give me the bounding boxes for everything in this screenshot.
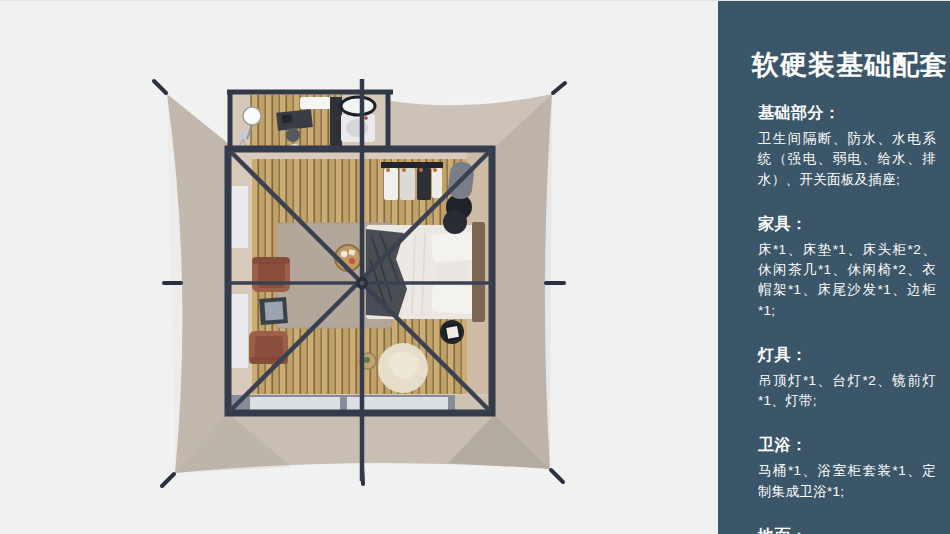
section-bathroom: 卫浴： 马桶*1、浴室柜套装*1、定制集成卫浴*1; xyxy=(758,435,936,502)
small-pillow xyxy=(437,263,467,283)
tent-floorplan-render xyxy=(0,1,718,534)
bathroom xyxy=(227,90,393,151)
info-panel: 软硬装基础配套 基础部分： 卫生间隔断、防水、水电系统（强电、弱电、给水、排水）… xyxy=(718,1,950,534)
section-body: 吊顶灯*1、台灯*2、镜前灯*1、灯带; xyxy=(758,371,936,412)
section-heading: 卫浴： xyxy=(758,435,936,456)
armchair-1 xyxy=(252,257,290,292)
tent-floorplan-svg xyxy=(0,1,718,534)
clothes-rack xyxy=(381,162,443,200)
section-flooring: 地面： 强化木地板、卫生间防滑防潮石塑板; xyxy=(758,526,936,534)
skylight xyxy=(300,97,335,109)
section-heading: 家具： xyxy=(758,214,936,235)
left-window-bottom xyxy=(230,294,248,368)
left-window-top xyxy=(230,186,248,248)
pillow xyxy=(431,284,475,315)
stool xyxy=(286,128,300,142)
section-body: 床*1、床垫*1、床头柜*2、休闲茶几*1、休闲椅*2、衣帽架*1、床尾沙发*1… xyxy=(758,240,936,321)
headboard xyxy=(472,222,485,322)
wash-basin xyxy=(341,97,375,142)
vanity-desk xyxy=(276,109,313,131)
bean-bag xyxy=(378,343,428,393)
section-furniture: 家具： 床*1、床垫*1、床头柜*2、休闲茶几*1、休闲椅*2、衣帽架*1、床尾… xyxy=(758,214,936,321)
section-heading: 灯具： xyxy=(758,345,936,366)
panel-title: 软硬装基础配套 xyxy=(752,47,936,83)
pillow xyxy=(431,232,475,263)
slide: 软硬装基础配套 基础部分： 卫生间隔断、防水、水电系统（强电、弱电、给水、排水）… xyxy=(0,0,950,534)
section-heading: 地面： xyxy=(758,526,936,534)
section-heading: 基础部分： xyxy=(758,103,936,124)
section-body: 卫生间隔断、防水、水电系统（强电、弱电、给水、排水）、开关面板及插座; xyxy=(758,129,936,190)
section-body: 马桶*1、浴室柜套装*1、定制集成卫浴*1; xyxy=(758,461,936,502)
magazine-rack xyxy=(259,297,288,325)
section-basics: 基础部分： 卫生间隔断、防水、水电系统（强电、弱电、给水、排水）、开关面板及插座… xyxy=(758,103,936,190)
section-lighting: 灯具： 吊顶灯*1、台灯*2、镜前灯*1、灯带; xyxy=(758,345,936,412)
